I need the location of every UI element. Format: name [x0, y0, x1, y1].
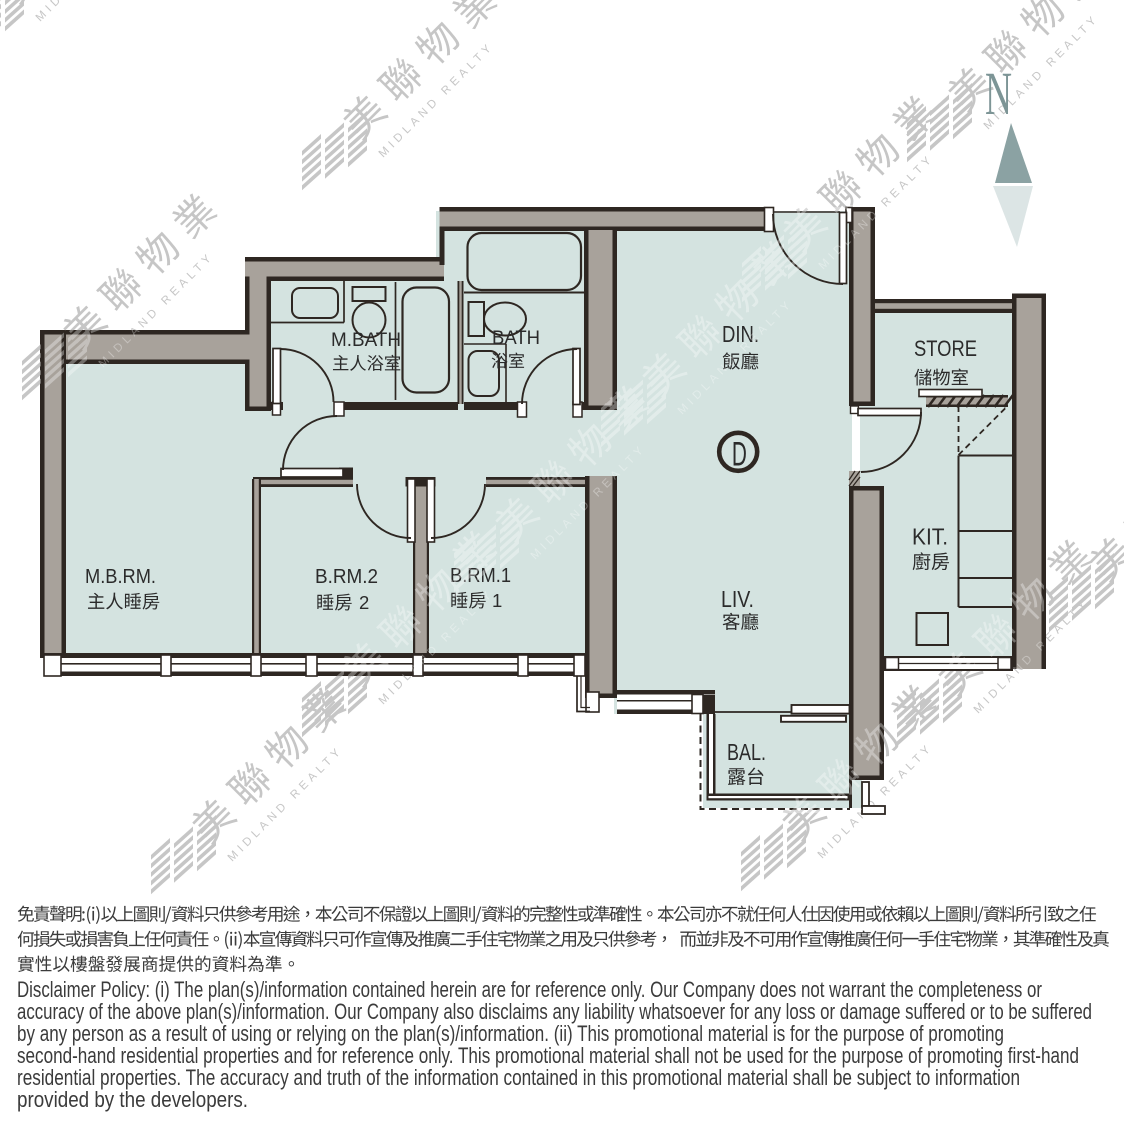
svg-text:provided by the developers.: provided by the developers. [17, 1087, 248, 1112]
svg-text:BATH: BATH [492, 328, 540, 349]
svg-text:M.BATH: M.BATH [331, 329, 401, 351]
svg-text:KIT.: KIT. [912, 524, 948, 550]
svg-text:N: N [985, 61, 1012, 128]
svg-text:2: 2 [359, 592, 369, 613]
svg-text:B.RM.2: B.RM.2 [315, 566, 378, 588]
svg-text:LIV.: LIV. [721, 586, 754, 612]
svg-text:BAL.: BAL. [727, 739, 766, 765]
svg-text:STORE: STORE [914, 336, 977, 361]
svg-text:D: D [732, 435, 747, 473]
svg-text:M.B.RM.: M.B.RM. [85, 566, 156, 588]
